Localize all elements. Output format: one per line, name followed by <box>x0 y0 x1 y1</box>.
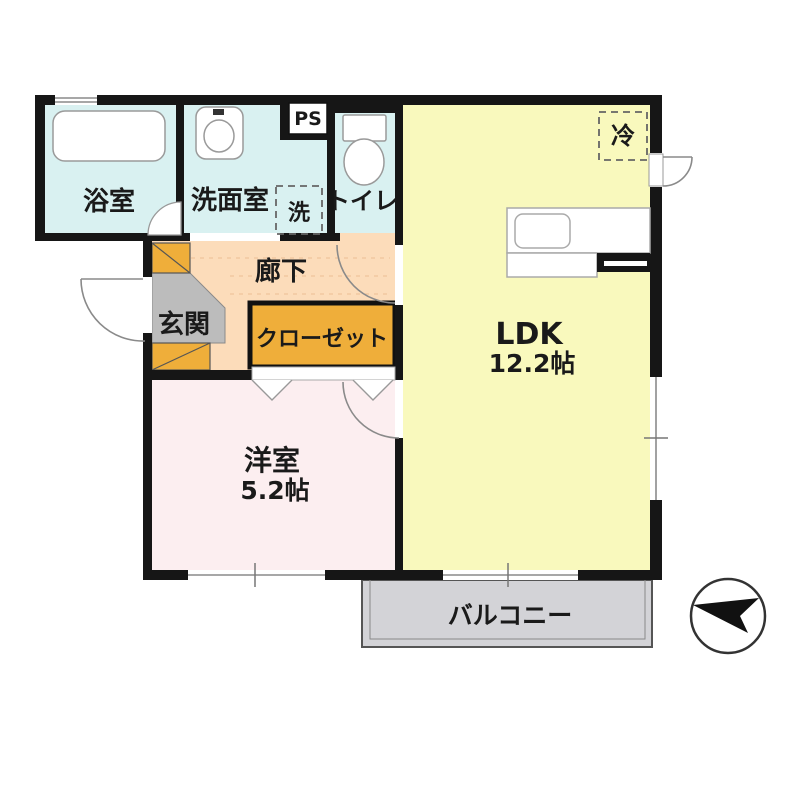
washer-space-label: 洗 <box>288 201 310 226</box>
refrigerator-label: 冷 <box>611 122 635 150</box>
toilet-label: トイレ <box>326 187 398 215</box>
ldk-label: LDK <box>495 317 564 352</box>
ldk-service-door-arc <box>649 154 692 186</box>
balcony-label: バルコニー <box>448 601 573 630</box>
bath-window <box>55 95 97 105</box>
compass-icon <box>691 579 765 653</box>
floorplan-svg: PS <box>0 0 800 800</box>
western-room-label: 洋室 <box>244 444 300 477</box>
ldk-size-label: 12.2帖 <box>489 349 576 378</box>
western-room-size-label: 5.2帖 <box>240 476 309 505</box>
front-door-arc <box>81 279 145 341</box>
hallway-label: 廊下 <box>255 256 307 287</box>
washroom-label: 洗面室 <box>191 185 269 216</box>
sink-icon <box>196 107 243 159</box>
bathtub-icon <box>53 111 165 161</box>
toilet-icon <box>343 115 386 185</box>
kitchen-counter-icon <box>507 208 650 277</box>
closet-label: クローゼット <box>256 327 388 352</box>
pipe-space: PS <box>289 103 327 134</box>
entrance-label: 玄関 <box>158 309 210 340</box>
pipe-space-label: PS <box>294 108 322 130</box>
stove-icon <box>597 253 650 272</box>
bath-label: 浴室 <box>83 186 135 217</box>
